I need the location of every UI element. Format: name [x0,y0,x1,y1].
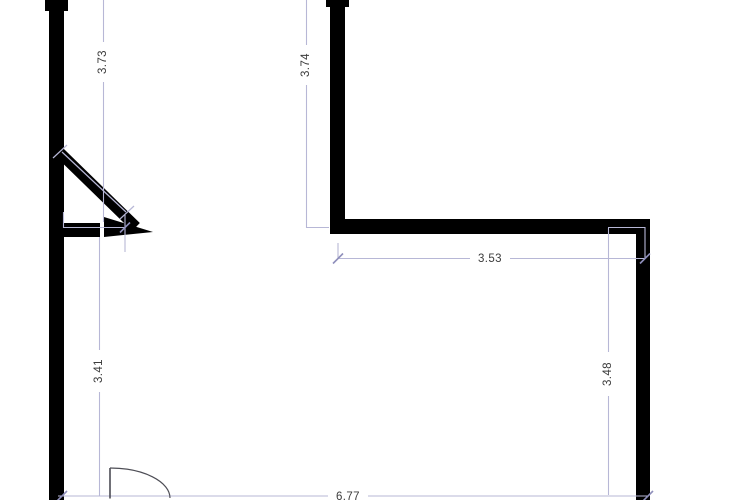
bottom-door-swing-arc [110,468,170,498]
middle-wall [330,0,345,234]
dim-341-label: 3.41 [93,359,105,383]
left-wall-top-cap [45,0,68,11]
dim-374-label: 3.74 [300,53,312,77]
dim-373-label: 3.73 [97,50,109,74]
floor-plan-drawing: 3.73 3.74 3.53 3.41 3.48 6.77 [0,0,750,500]
upper-horizontal-wall [330,219,650,234]
middle-wall-top-cap [326,0,349,7]
dim-353-label: 3.53 [478,253,502,265]
dim-677-label: 6.77 [336,491,360,500]
open-door-leaf-inner-line [62,152,126,212]
floor-plan-canvas: 3.73 3.74 3.53 3.41 3.48 6.77 [0,0,750,500]
dim-348-label: 3.48 [602,362,614,386]
door-jamb-wall [63,223,100,237]
left-wall [49,0,64,500]
